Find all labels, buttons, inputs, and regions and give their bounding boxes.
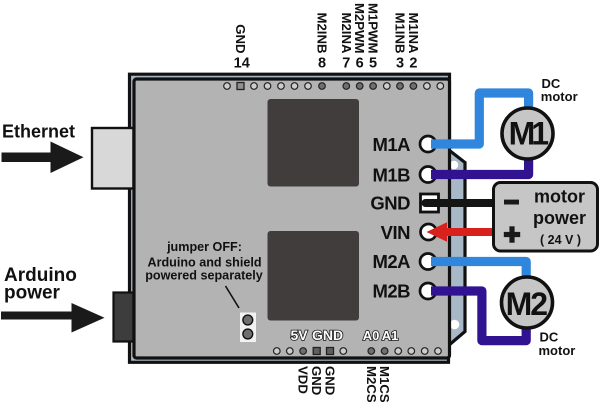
svg-text:VIN: VIN <box>381 222 410 243</box>
svg-text:GND: GND <box>233 24 248 53</box>
svg-text:M1A: M1A <box>372 134 410 155</box>
svg-text:M1CS: M1CS <box>377 366 392 402</box>
svg-text:M1INB: M1INB <box>393 12 408 53</box>
svg-text:M2: M2 <box>506 286 548 322</box>
svg-text:6: 6 <box>356 56 364 72</box>
svg-text:Ethernet: Ethernet <box>2 122 75 142</box>
svg-text:M1PWM: M1PWM <box>366 3 381 54</box>
svg-text:2: 2 <box>409 56 417 72</box>
svg-text:M2INB: M2INB <box>315 12 330 53</box>
svg-text:GND: GND <box>323 366 338 395</box>
svg-text:motor: motor <box>541 89 578 104</box>
svg-text:jumper OFF:: jumper OFF: <box>166 240 242 254</box>
svg-text:GND: GND <box>370 193 410 214</box>
svg-text:M2INA: M2INA <box>339 12 354 54</box>
svg-text:3: 3 <box>396 56 404 72</box>
svg-text:GND: GND <box>312 327 343 343</box>
svg-text:( 24 V ): ( 24 V ) <box>540 233 581 247</box>
svg-text:power: power <box>4 283 61 304</box>
svg-text:VDD: VDD <box>296 366 311 394</box>
svg-text:A1: A1 <box>382 328 399 343</box>
svg-text:5: 5 <box>369 56 377 72</box>
svg-text:M1B: M1B <box>372 165 410 186</box>
svg-text:8: 8 <box>318 56 326 72</box>
svg-text:M2PWM: M2PWM <box>352 3 367 54</box>
svg-text:powered separately: powered separately <box>145 268 263 282</box>
svg-text:M1INA: M1INA <box>406 12 421 54</box>
svg-text:M2A: M2A <box>372 251 410 272</box>
svg-text:M2B: M2B <box>372 281 410 302</box>
svg-text:motor: motor <box>534 187 585 207</box>
svg-text:Arduino and shield: Arduino and shield <box>147 255 261 269</box>
svg-text:motor: motor <box>539 343 576 358</box>
svg-text:14: 14 <box>234 56 250 72</box>
svg-text:7: 7 <box>342 56 350 72</box>
svg-text:M2CS: M2CS <box>364 366 379 402</box>
svg-text:GND: GND <box>309 366 324 395</box>
svg-text:M1: M1 <box>509 116 549 152</box>
svg-text:5V: 5V <box>290 327 308 343</box>
svg-text:power: power <box>533 208 586 228</box>
svg-text:A0: A0 <box>363 328 380 343</box>
